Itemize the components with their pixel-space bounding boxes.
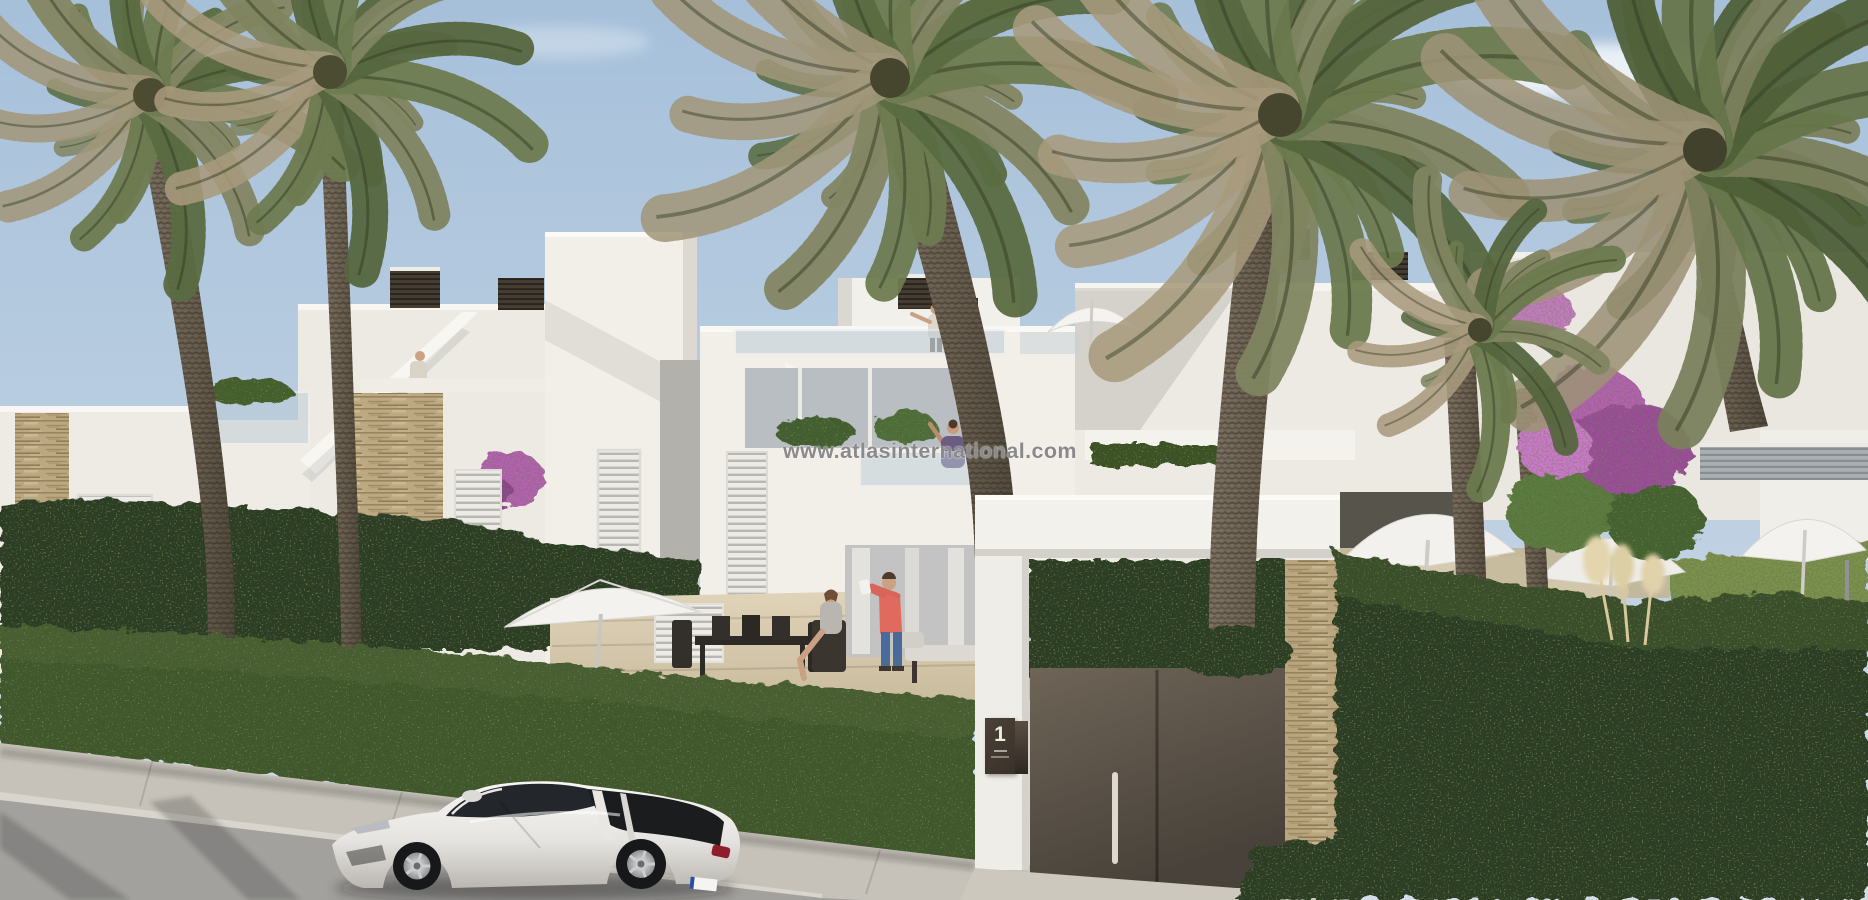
gate-left-post [975, 556, 1029, 870]
watermark: www.atlasinternational.com [783, 439, 1103, 464]
trunk-base-foliage [1172, 626, 1292, 678]
wheel-front [393, 842, 441, 890]
privacy-fence [1700, 446, 1868, 480]
louver-panel-right [727, 452, 767, 602]
plaque-text-line [994, 750, 1007, 752]
hedge-wrap-gate [1235, 840, 1360, 900]
dining-chair [712, 616, 730, 640]
gate-beam [975, 495, 1340, 557]
dining-chair [742, 615, 760, 639]
entrance-gate [960, 495, 1343, 900]
chimney-left-2 [498, 278, 544, 310]
side-mirror [462, 790, 482, 802]
gate-handle [1112, 772, 1118, 864]
gate-number-plaque-side [1015, 721, 1028, 774]
gate-number: 1 [994, 724, 1006, 745]
gate-number-plaque: 1 [985, 718, 1015, 774]
terrace-plants [208, 378, 292, 406]
dining-chair [672, 620, 692, 668]
architectural-render: www.atlasinternational.com 1 [0, 0, 1868, 900]
plaque-text-line [991, 756, 1009, 758]
chimney-left-1 [390, 270, 440, 308]
wheel-rear [616, 839, 666, 889]
dining-chair [772, 616, 790, 640]
